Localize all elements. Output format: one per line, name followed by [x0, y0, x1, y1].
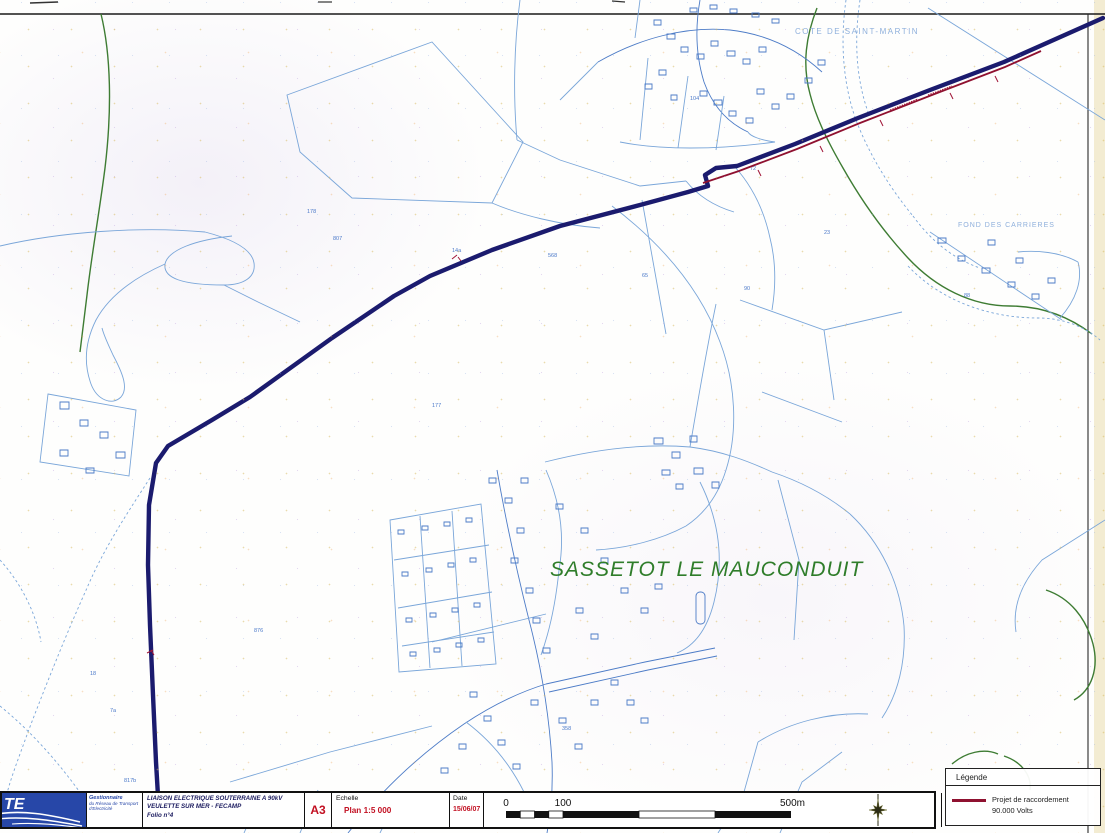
parcel-number: 876	[254, 628, 263, 634]
legend-item-line2: 90.000 Volts	[992, 805, 1069, 816]
date-cell: Date 15/06/07	[450, 793, 484, 827]
parcel-number: 177	[432, 403, 441, 409]
date-label: Date	[453, 795, 480, 802]
map-canvas: 178 807 14a 18 817b 568 90 65 177 876 7a…	[0, 0, 1105, 833]
parcel-number: 568	[548, 253, 557, 259]
quarry-label: FOND DES CARRIERES	[958, 222, 1055, 229]
operator-line2: du Réseau de Transport d'Electricité	[89, 801, 140, 812]
parcel-number: 65	[642, 273, 648, 279]
scalebar-graphic: 0 100 500m	[484, 793, 941, 827]
rte-logo-graphic: TE	[2, 793, 87, 827]
legend-item-line1: Projet de raccordement	[992, 794, 1069, 805]
parcel-number: 88	[964, 293, 970, 299]
parcel-number: 23	[824, 230, 830, 236]
scale-tick-100: 100	[555, 798, 572, 809]
parcel-number: 90	[744, 286, 750, 292]
map-sheet: 178 807 14a 18 817b 568 90 65 177 876 7a…	[0, 0, 1105, 833]
parcel-number: 817b	[124, 778, 136, 784]
parcel-numbers: 178 807 14a 18 817b 568 90 65 177 876 7a…	[90, 96, 970, 784]
legend-title: Légende	[946, 769, 1100, 786]
paper-format: A3	[305, 793, 332, 827]
parcel-number: 178	[307, 209, 316, 215]
project-title-cell: LIAISON ELECTRIQUE SOUTERRAINE A 90kV VE…	[143, 793, 305, 827]
building-footprints	[60, 5, 1055, 773]
sheet-frame	[0, 0, 1105, 833]
parcel-number: 104	[690, 96, 699, 102]
parcel-number: 358	[562, 726, 571, 732]
date-value: 15/06/07	[453, 806, 480, 813]
legend-red-line-swatch	[952, 799, 986, 802]
cadastral-lines	[0, 0, 1105, 833]
scale-value: Plan 1:5 000	[336, 806, 445, 815]
parcel-number: 18	[90, 671, 96, 677]
title-block: TE Gestionnaire du Réseau de Transport d…	[0, 791, 936, 829]
project-line2: VEULETTE SUR MER - FECAMP	[147, 803, 300, 811]
cable-route-line	[148, 18, 1103, 796]
scale-tick-0: 0	[503, 798, 509, 809]
rte-logo-text: TE	[4, 796, 26, 813]
compass-rose-icon	[869, 794, 887, 826]
scalebar-cell: 0 100 500m	[484, 793, 942, 827]
parcel-number: 7a	[110, 708, 117, 714]
project-line1: LIAISON ELECTRIQUE SOUTERRAINE A 90kV	[147, 795, 300, 803]
operator-cell: Gestionnaire du Réseau de Transport d'El…	[87, 793, 143, 827]
terrain-green-lines	[80, 8, 1095, 790]
project-line3: Folio n°4	[147, 812, 300, 820]
scale-tick-500: 500m	[780, 798, 805, 809]
scale-cell: Echelle Plan 1:5 000	[332, 793, 450, 827]
rte-logo: TE	[2, 793, 87, 827]
scale-bar	[506, 811, 791, 818]
hill-label: COTE DE SAINT-MARTIN	[795, 27, 919, 36]
parcel-number: 14a	[452, 248, 462, 254]
scale-label: Echelle	[336, 795, 445, 802]
town-label: SASSETOT LE MAUCONDUIT	[550, 558, 863, 582]
legend: Légende Projet de raccordement 90.000 Vo…	[945, 768, 1101, 826]
parcel-number: 807	[333, 236, 342, 242]
